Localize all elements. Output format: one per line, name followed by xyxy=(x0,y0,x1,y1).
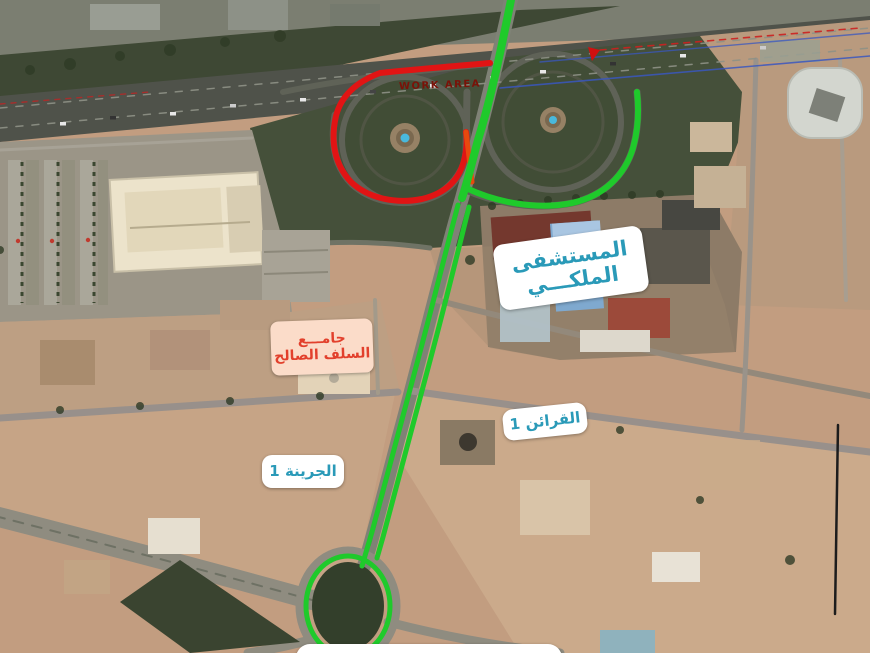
label-mosque-line1: جامـــع xyxy=(297,330,345,348)
label-mosque-line2: السلف الصالح xyxy=(274,345,371,364)
label-bottom-partial xyxy=(296,644,562,653)
label-jarina-1-text: الجرينة 1 xyxy=(269,463,336,480)
label-mosque: جامـــع السلف الصالح xyxy=(270,318,374,376)
satellite-base xyxy=(0,0,870,653)
label-qarain-1-text: القرائن 1 xyxy=(509,409,581,434)
satellite-map-image: WORK AREA المستشفى الملكـــي جامـــع الس… xyxy=(0,0,870,653)
label-jarina-1: الجرينة 1 xyxy=(262,455,344,488)
